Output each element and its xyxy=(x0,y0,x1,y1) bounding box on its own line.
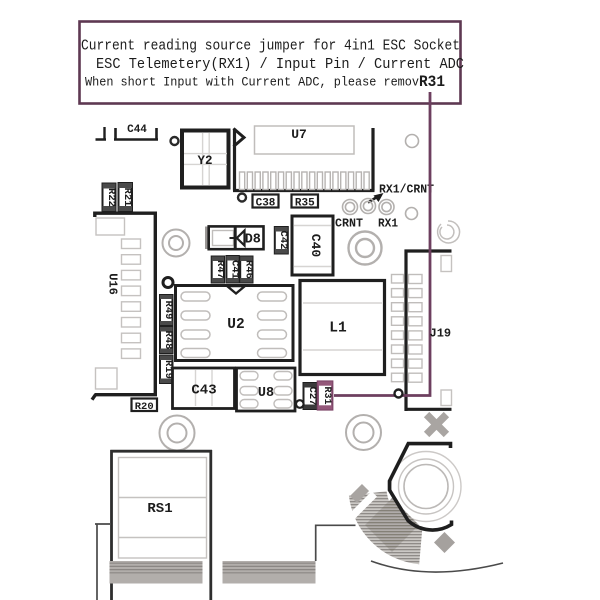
svg-text:U16: U16 xyxy=(106,273,120,295)
svg-text:When short Input with Current: When short Input with Current ADC, pleas… xyxy=(85,75,419,90)
svg-text:CRNT: CRNT xyxy=(335,217,363,231)
svg-text:L1: L1 xyxy=(329,321,347,337)
svg-text:Y2: Y2 xyxy=(197,154,212,168)
svg-text:C42: C42 xyxy=(277,231,289,250)
svg-text:C44: C44 xyxy=(127,124,147,136)
svg-text:R21: R21 xyxy=(121,188,133,207)
svg-text:RX1/CRNT: RX1/CRNT xyxy=(379,183,434,197)
svg-text:Current reading source jumper: Current reading source jumper for 4in1 E… xyxy=(81,38,460,55)
svg-text:C43: C43 xyxy=(191,383,216,399)
svg-text:R20: R20 xyxy=(135,401,154,413)
svg-text:ESC Telemetery(RX1) / Input Pi: ESC Telemetery(RX1) / Input Pin / Curren… xyxy=(96,56,464,73)
svg-text:R46: R46 xyxy=(242,260,254,279)
svg-text:C27: C27 xyxy=(306,387,318,406)
svg-text:U2: U2 xyxy=(227,317,244,333)
svg-text:R48: R48 xyxy=(162,331,174,350)
svg-text:R31: R31 xyxy=(321,386,332,404)
svg-text:R35: R35 xyxy=(295,198,315,210)
svg-text:U8: U8 xyxy=(258,386,274,401)
svg-text:RS1: RS1 xyxy=(147,501,172,517)
svg-text:J19: J19 xyxy=(430,327,452,341)
svg-text:U7: U7 xyxy=(291,127,307,142)
svg-text:C38: C38 xyxy=(256,198,276,210)
svg-text:C40: C40 xyxy=(308,234,323,258)
svg-text:R47: R47 xyxy=(214,260,226,279)
svg-text:R31: R31 xyxy=(419,73,445,91)
svg-text:D8: D8 xyxy=(245,233,261,248)
svg-text:C41: C41 xyxy=(229,260,241,279)
svg-text:R22: R22 xyxy=(105,188,117,207)
svg-text:RX1: RX1 xyxy=(378,217,398,231)
svg-text:R49: R49 xyxy=(162,301,174,320)
